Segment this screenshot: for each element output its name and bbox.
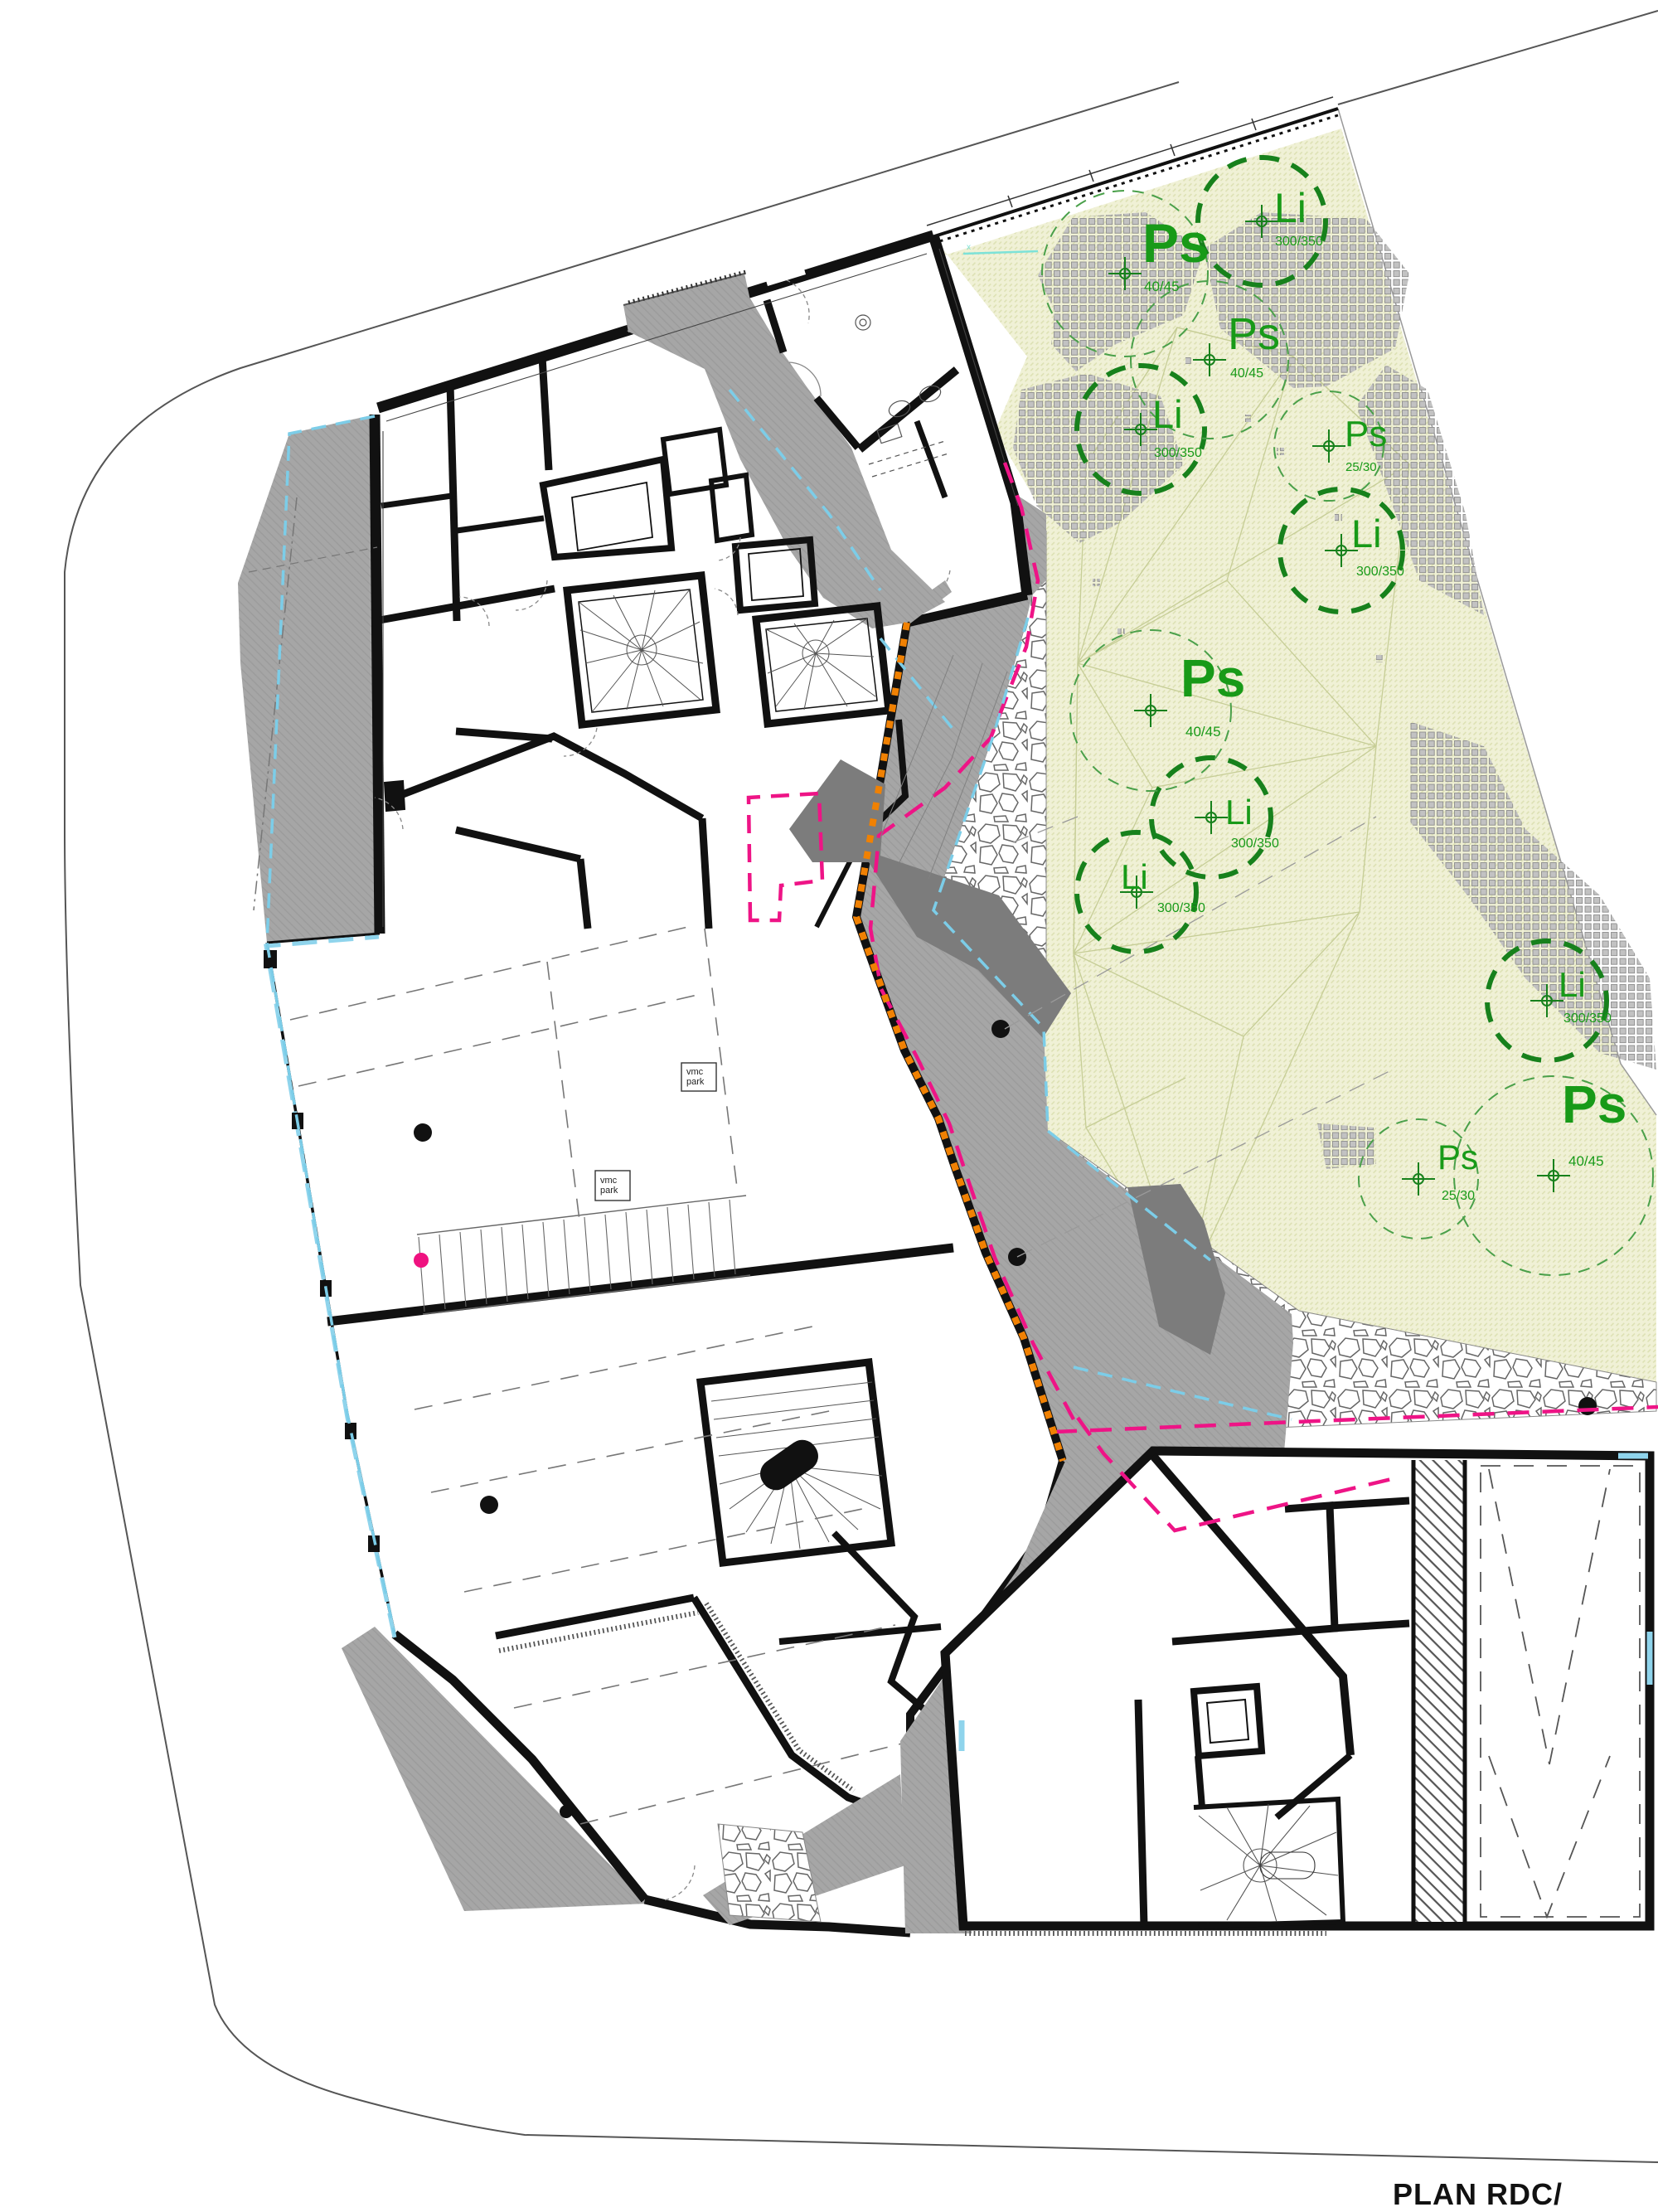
svg-text:Ps: Ps <box>1180 648 1245 708</box>
svg-text:Li: Li <box>1121 857 1148 896</box>
svg-text:40/45: 40/45 <box>1230 366 1263 381</box>
svg-text:300/350: 300/350 <box>1157 901 1205 915</box>
svg-text:300/350: 300/350 <box>1356 565 1404 579</box>
svg-text:PLAN RDC/: PLAN RDC/ <box>1393 2177 1563 2211</box>
svg-text:300/350: 300/350 <box>1231 837 1279 851</box>
svg-text:40/45: 40/45 <box>1568 1153 1604 1169</box>
svg-text:Li: Li <box>1351 512 1382 555</box>
svg-text:Ps: Ps <box>1437 1138 1478 1176</box>
svg-text:Li: Li <box>1559 965 1586 1004</box>
svg-text:park: park <box>686 1077 705 1087</box>
svg-text:Li: Li <box>1152 392 1183 436</box>
svg-text:Li: Li <box>1225 793 1253 832</box>
svg-text:vmc: vmc <box>686 1067 704 1077</box>
svg-text:40/45: 40/45 <box>1185 724 1221 740</box>
svg-text:Ps: Ps <box>1562 1074 1626 1134</box>
svg-text:25/30: 25/30 <box>1442 1189 1475 1203</box>
svg-text:25/30: 25/30 <box>1345 460 1377 474</box>
svg-text:park: park <box>600 1186 618 1196</box>
svg-text:Ps: Ps <box>1345 414 1387 454</box>
svg-text:vmc: vmc <box>600 1176 618 1186</box>
svg-text:Ps: Ps <box>1228 309 1280 359</box>
svg-text:Li: Li <box>1274 185 1307 231</box>
svg-text:300/350: 300/350 <box>1563 1011 1612 1026</box>
svg-text:40/45: 40/45 <box>1144 279 1180 294</box>
svg-text:x: x <box>967 243 971 252</box>
svg-text:300/350: 300/350 <box>1154 446 1202 460</box>
svg-text:Ps: Ps <box>1142 212 1210 274</box>
svg-text:300/350: 300/350 <box>1275 235 1323 249</box>
